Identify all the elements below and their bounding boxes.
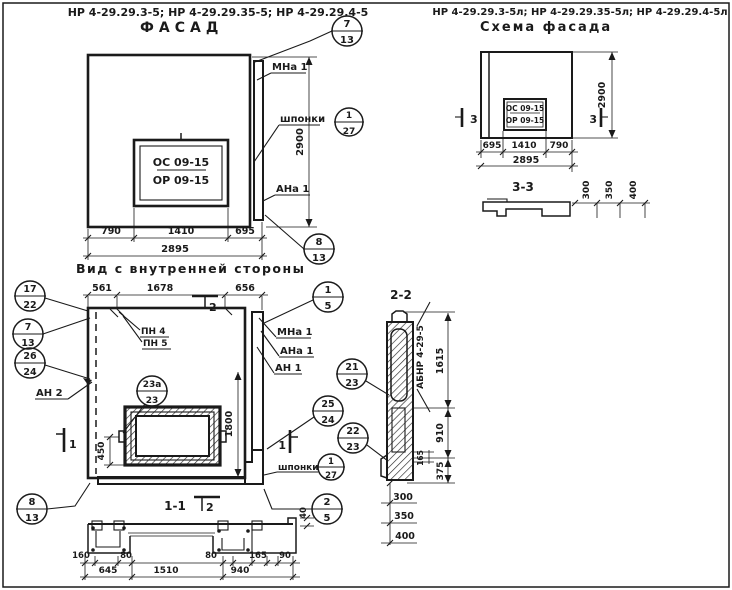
callout-leader: [47, 483, 90, 509]
section-3-3-title: 3-3: [512, 180, 534, 194]
callout-leader: [262, 300, 313, 324]
interior-strip-foot: [245, 450, 263, 484]
callout-17-22: 17 22: [14, 281, 46, 311]
dim-label: 656: [235, 283, 255, 294]
svg-text:2: 2: [324, 497, 331, 508]
callout-leader: [265, 215, 304, 249]
dim-label: 165: [416, 450, 425, 466]
dim-label: 400: [395, 531, 415, 542]
dim-label: 90: [279, 551, 291, 561]
shponki-leader-interior: [264, 472, 318, 475]
window-mid: [131, 412, 214, 460]
dim-label: 160: [72, 551, 90, 561]
svg-text:23: 23: [146, 396, 159, 406]
svg-text:2: 2: [206, 501, 214, 514]
section-1-1-title: 1-1: [164, 499, 186, 513]
svg-text:13: 13: [340, 35, 354, 46]
facade-window-inner: [140, 146, 222, 200]
section-2-2-title: 2-2: [390, 288, 412, 302]
svg-text:25: 25: [321, 399, 334, 410]
svg-text:23: 23: [346, 442, 359, 453]
dim-label: 1800: [224, 410, 235, 437]
interior-side-strip: [252, 312, 263, 450]
label-ana1-interior: АНа 1: [280, 346, 313, 357]
callout-1-27-interior: 1 27: [317, 454, 345, 481]
leader-arrowhead: [83, 378, 92, 385]
schema-title: НР 4-29.29.3-5л; НР 4-29.29.35-5л; НР 4-…: [432, 7, 727, 18]
svg-text:3: 3: [589, 113, 597, 126]
mna1-leader: [257, 73, 306, 80]
dim-label: 910: [435, 423, 446, 443]
dim-label: 300: [393, 492, 413, 503]
window-inner: [136, 416, 209, 456]
section-3-3-profile: [483, 202, 570, 216]
svg-text:5: 5: [324, 513, 331, 524]
svg-text:24: 24: [321, 415, 335, 426]
schema-subtitle: Схема фасада: [480, 20, 612, 35]
dim-label: 80: [205, 551, 217, 561]
facade-panel-mark-2: ОР 09-15: [153, 174, 209, 187]
dim-label: 40: [299, 507, 309, 519]
svg-text:22: 22: [23, 300, 36, 311]
dim-label: 695: [483, 141, 502, 151]
callout-leader: [264, 489, 312, 509]
interior-view: Вид с внутренней стороны 561 1678 656 2 …: [12, 261, 389, 580]
callout-1-27: 1 27: [334, 108, 364, 137]
section-marker-1-left: 1: [56, 428, 77, 452]
facade-side-strip: [254, 61, 263, 220]
dim-label: 350: [394, 511, 414, 522]
schema-view: НР 4-29.29.3-5л; НР 4-29.29.35-5л; НР 4-…: [432, 7, 727, 218]
svg-text:13: 13: [312, 253, 326, 264]
svg-text:1: 1: [346, 111, 352, 121]
drawing-sheet: НР 4-29.29.3-5; НР 4-29.29.35-5; НР 4-29…: [0, 0, 732, 590]
svg-text:21: 21: [345, 362, 358, 373]
svg-text:13: 13: [21, 338, 34, 349]
svg-text:1: 1: [328, 457, 334, 467]
dim-label: 2895: [161, 244, 189, 255]
callout-22-23: 22 23: [337, 423, 369, 453]
label-mna1-interior: МНа 1: [277, 327, 313, 338]
callout-leader: [43, 318, 90, 334]
dim-label: 790: [550, 141, 569, 151]
dim-label: 2895: [513, 155, 539, 166]
svg-text:23а: 23а: [143, 380, 162, 390]
label-an2: АН 2: [36, 388, 63, 399]
svg-text:1: 1: [278, 439, 286, 452]
callout-23a-23: 23а 23: [136, 376, 168, 406]
dim-label: 80: [120, 551, 132, 561]
svg-text:1: 1: [69, 438, 77, 451]
label-an1: АН 1: [275, 363, 302, 374]
label-pn4: ПН 4: [141, 327, 165, 337]
callout-25-24: 25 24: [312, 396, 344, 426]
svg-text:7: 7: [25, 322, 32, 333]
dim-label: 165: [249, 551, 267, 561]
svg-text:22: 22: [346, 426, 359, 437]
svg-text:8: 8: [29, 497, 36, 508]
svg-text:7: 7: [344, 19, 351, 30]
dim-label: 645: [99, 566, 118, 576]
facade-title: НР 4-29.29.3-5; НР 4-29.29.35-5; НР 4-29…: [68, 6, 369, 19]
interior-title: Вид с внутренней стороны: [76, 261, 305, 276]
callout-leader: [367, 445, 388, 461]
dim-label: 1678: [147, 283, 174, 294]
technical-drawing-canvas: НР 4-29.29.3-5; НР 4-29.29.35-5; НР 4-29…: [0, 0, 732, 590]
facade-view: НР 4-29.29.3-5; НР 4-29.29.35-5; НР 4-29…: [68, 6, 369, 264]
svg-text:17: 17: [23, 284, 36, 295]
callout-leader: [45, 365, 90, 379]
svg-text:8: 8: [316, 237, 323, 248]
section-2-2-cap: [392, 311, 407, 322]
svg-text:27: 27: [343, 127, 356, 137]
section-marker-3-right: 3: [589, 108, 608, 127]
svg-text:1: 1: [325, 285, 332, 296]
section-2-2-label: АБНР 4-29-5: [416, 325, 426, 389]
svg-text:27: 27: [325, 471, 337, 481]
callout-leader: [366, 381, 389, 395]
callout-26-24: 26 24: [14, 348, 46, 378]
schema-panel-mark-1: ОС 09-15: [506, 104, 544, 113]
label-ana1: АНа 1: [276, 184, 309, 195]
schema-panel-mark-2: ОР 09-15: [506, 116, 544, 125]
section-marker-3-left: 3: [455, 108, 478, 127]
dim-label: 375: [436, 462, 446, 481]
dim-label: 300: [582, 181, 592, 200]
dim-label: 561: [92, 283, 112, 294]
facade-window-outer: [134, 140, 228, 206]
label-shponki: шпонки: [280, 114, 325, 125]
section-marker-2-bottom: 2: [194, 497, 220, 514]
dim-label: 1510: [153, 566, 178, 576]
section-1-1-profile: [88, 518, 296, 553]
section-2-2: 2-2 АБНР 4-29-5 1615 910 375 165 300 350…: [381, 288, 455, 546]
callout-7-13: 7 13: [331, 16, 363, 46]
facade-subtitle: ФАСАД: [140, 20, 223, 36]
label-mna1: МНа 1: [272, 62, 308, 73]
facade-height-extensions: [252, 57, 317, 227]
callout-leader: [45, 298, 88, 311]
svg-text:26: 26: [23, 351, 37, 362]
svg-text:24: 24: [23, 367, 37, 378]
callout-1-5: 1 5: [312, 282, 344, 312]
dim-450-lines: [104, 437, 125, 465]
callout-2-5: 2 5: [311, 494, 343, 524]
dim-label: 695: [235, 226, 255, 237]
section-marker-2-top: 2: [192, 296, 218, 314]
facade-panel-mark-1: ОС 09-15: [153, 156, 209, 169]
dim-label: 1615: [435, 348, 446, 374]
svg-text:3: 3: [470, 113, 478, 126]
dim-label: 940: [231, 566, 250, 576]
dim-label: 1410: [168, 226, 195, 237]
dim-label: 400: [629, 181, 639, 200]
dim-label: 450: [97, 442, 107, 461]
section-marker-1-right: 1: [278, 430, 298, 453]
ana1-leader: [263, 195, 310, 201]
dim-label: 2900: [295, 128, 306, 156]
schema-width-dim-lines: [572, 203, 650, 218]
dim-label: 1410: [511, 141, 536, 151]
callout-8-13-interior: 8 13: [16, 494, 48, 524]
callout-8-13: 8 13: [303, 234, 335, 264]
dim-label: 790: [101, 226, 121, 237]
schema-panel-outline: [481, 52, 572, 138]
dim-label: 350: [605, 181, 615, 200]
dim-label: 2900: [597, 81, 608, 108]
svg-text:13: 13: [25, 513, 39, 524]
callout-7-13-interior: 7 13: [12, 319, 44, 349]
svg-text:23: 23: [345, 378, 358, 389]
label-pn5: ПН 5: [143, 339, 167, 349]
svg-text:5: 5: [325, 301, 332, 312]
callout-21-23: 21 23: [336, 359, 368, 389]
